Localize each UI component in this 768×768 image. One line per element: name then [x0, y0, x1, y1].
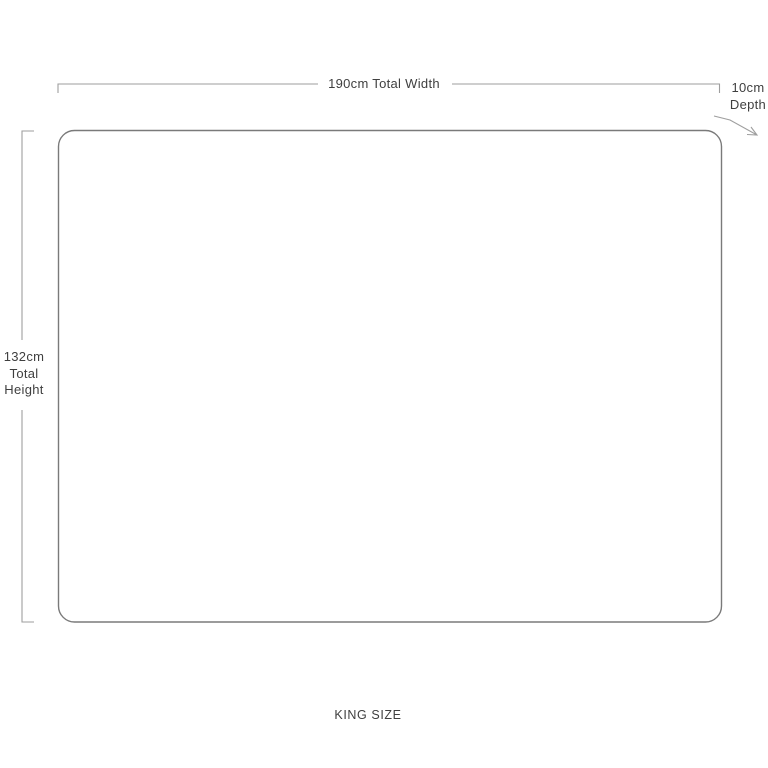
dimension-diagram: 190cm Total Width 10cm Depth 132cm Total… [0, 0, 768, 768]
depth-arrow [714, 116, 757, 135]
size-name-label: KING SIZE [268, 707, 468, 724]
height-value: 132cm [0, 349, 54, 366]
height-word-total: Total [0, 366, 54, 383]
height-word-height: Height [0, 382, 54, 399]
depth-dimension-label: 10cm Depth [718, 80, 768, 113]
diagram-linework [0, 0, 768, 768]
product-outline-rect [59, 131, 722, 623]
height-dimension-label: 132cm Total Height [0, 349, 54, 399]
depth-word: Depth [718, 97, 768, 114]
depth-value: 10cm [718, 80, 768, 97]
width-dimension-label: 190cm Total Width [328, 76, 440, 93]
